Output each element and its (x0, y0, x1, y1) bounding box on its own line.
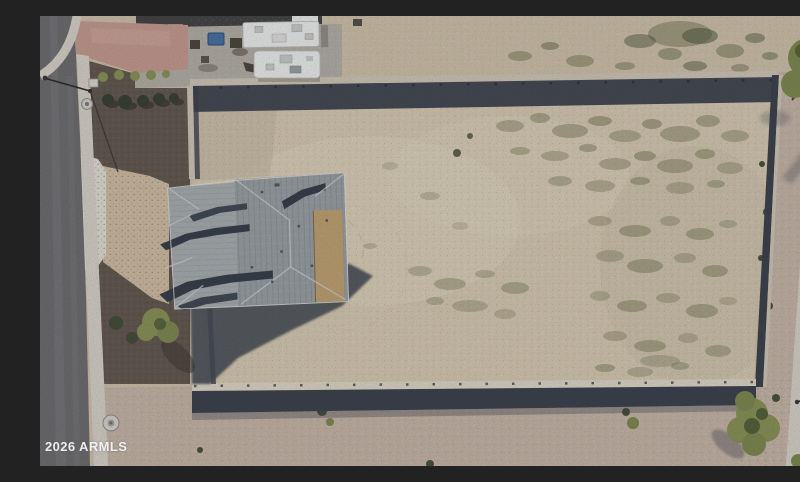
aerial-photo-canvas (40, 16, 800, 466)
photo-grain (40, 16, 800, 466)
aerial-photo: 2026 ARMLS (40, 16, 800, 466)
watermark: 2026 ARMLS (45, 439, 127, 454)
